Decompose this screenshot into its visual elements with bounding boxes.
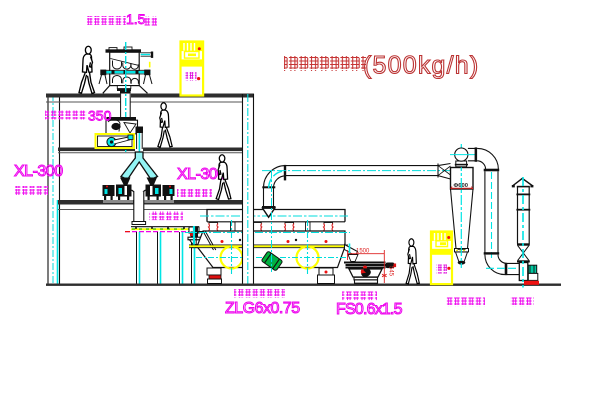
- svg-text:ZLG6x0.75: ZLG6x0.75: [225, 300, 300, 317]
- svg-text:(500kg/h): (500kg/h): [363, 52, 479, 80]
- svg-text:350: 350: [88, 108, 112, 124]
- svg-text:XL-300: XL-300: [14, 163, 63, 180]
- svg-text:1.5: 1.5: [126, 11, 146, 27]
- svg-text:545: 545: [388, 266, 394, 277]
- svg-text:1500: 1500: [356, 249, 370, 255]
- svg-text:FS0.6x1.5: FS0.6x1.5: [336, 301, 403, 318]
